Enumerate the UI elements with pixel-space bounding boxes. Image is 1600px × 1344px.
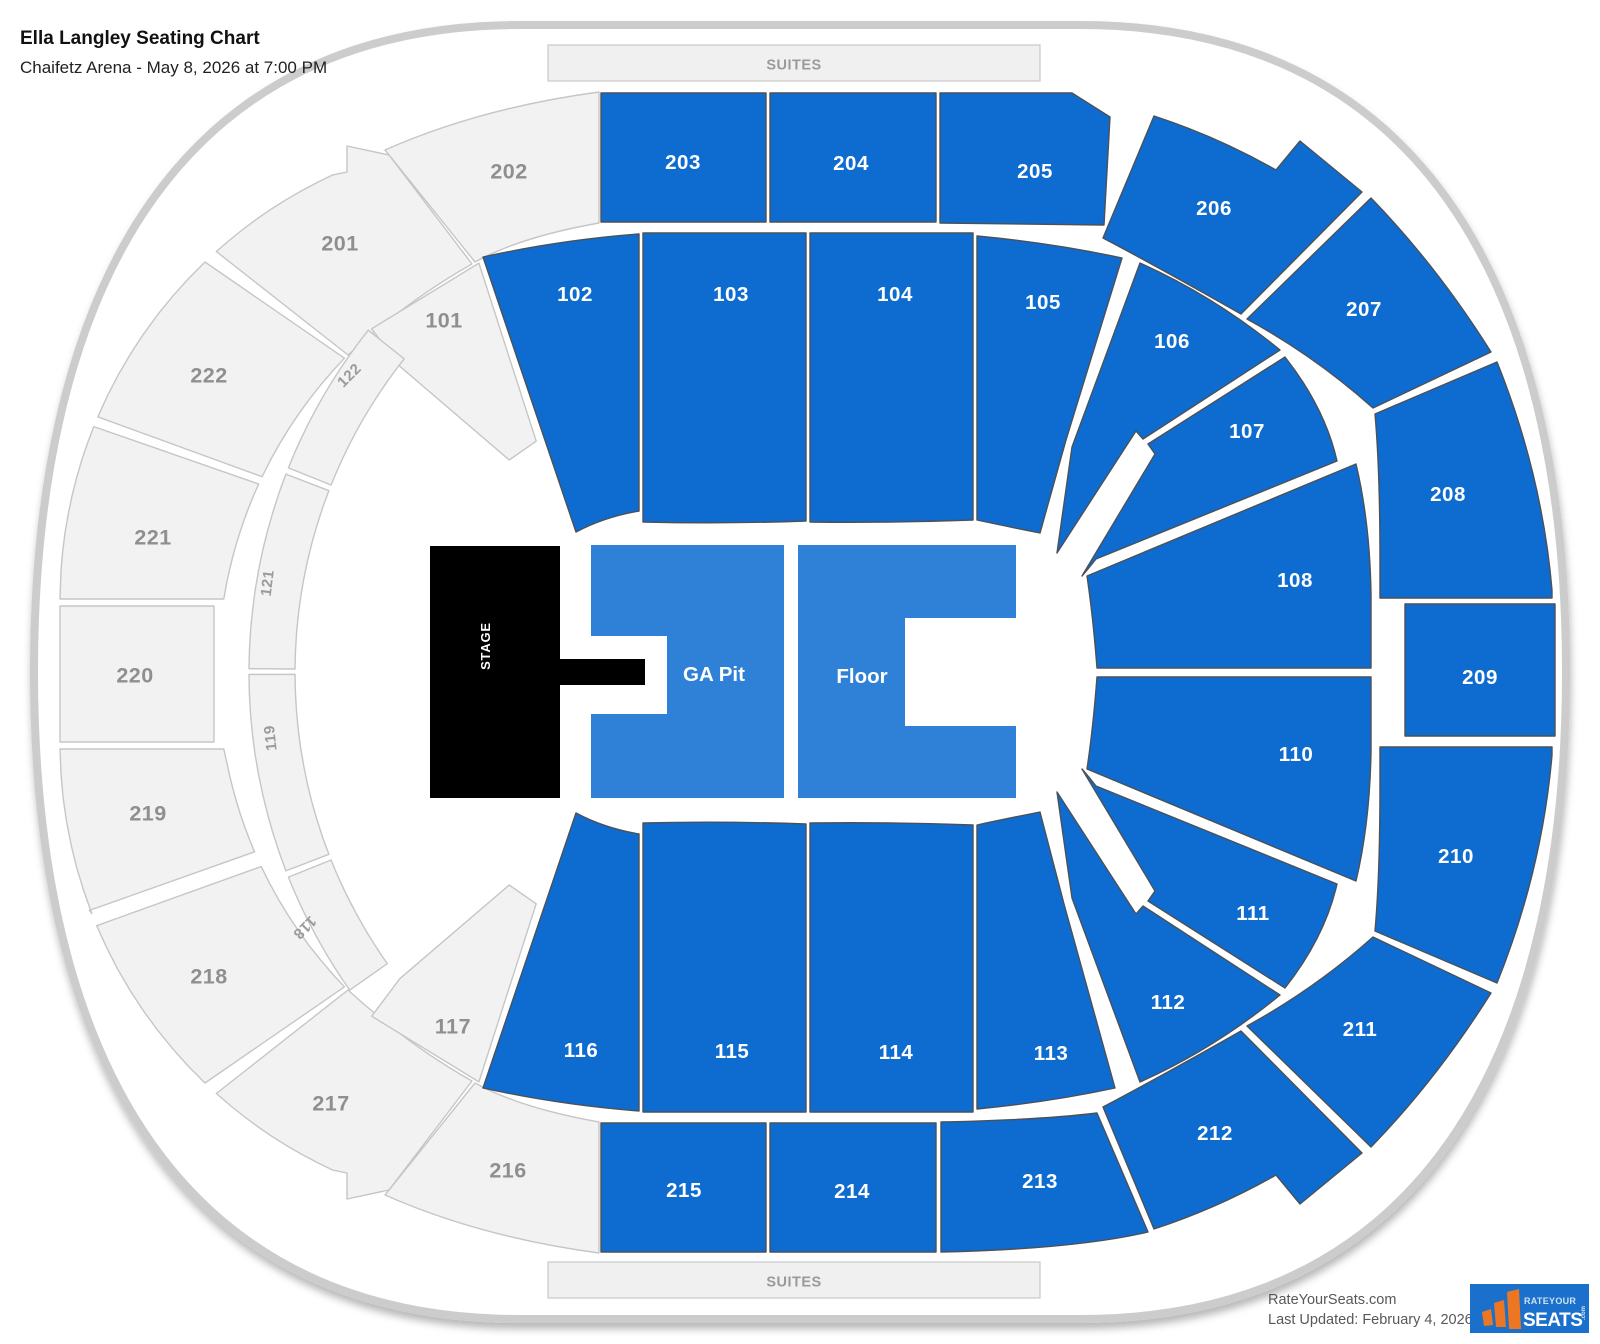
- svg-text:212: 212: [1197, 1122, 1233, 1145]
- svg-text:107: 107: [1229, 420, 1265, 443]
- svg-text:Chaifetz Arena - May 8, 2026 a: Chaifetz Arena - May 8, 2026 at 7:00 PM: [20, 58, 327, 77]
- svg-text:208: 208: [1430, 483, 1466, 506]
- svg-text:213: 213: [1022, 1170, 1058, 1193]
- svg-text:222: 222: [190, 364, 227, 388]
- svg-text:216: 216: [489, 1159, 526, 1183]
- svg-text:204: 204: [833, 152, 869, 175]
- svg-text:219: 219: [129, 802, 166, 826]
- svg-text:112: 112: [1151, 991, 1186, 1014]
- svg-text:Ella Langley Seating Chart: Ella Langley Seating Chart: [20, 28, 260, 49]
- svg-text:211: 211: [1343, 1018, 1378, 1041]
- svg-text:113: 113: [1034, 1042, 1069, 1065]
- svg-text:SEATS: SEATS: [1523, 1310, 1582, 1331]
- svg-text:.com: .com: [1581, 1306, 1587, 1320]
- svg-text:214: 214: [834, 1180, 870, 1203]
- svg-text:116: 116: [564, 1039, 599, 1062]
- svg-text:Last Updated: February 4, 2026: Last Updated: February 4, 2026: [1268, 1312, 1473, 1328]
- svg-text:RateYourSeats.com: RateYourSeats.com: [1268, 1292, 1396, 1308]
- svg-text:104: 104: [877, 283, 913, 306]
- svg-text:115: 115: [715, 1040, 750, 1063]
- svg-text:206: 206: [1196, 197, 1232, 220]
- svg-text:218: 218: [190, 965, 227, 989]
- svg-text:201: 201: [321, 232, 358, 256]
- svg-text:119: 119: [261, 724, 281, 751]
- svg-text:217: 217: [312, 1092, 349, 1116]
- svg-text:111: 111: [1236, 902, 1269, 925]
- svg-text:106: 106: [1154, 330, 1190, 353]
- svg-text:Floor: Floor: [836, 665, 887, 688]
- svg-text:RATEYOUR: RATEYOUR: [1524, 1296, 1576, 1306]
- svg-text:114: 114: [879, 1041, 914, 1064]
- svg-text:221: 221: [134, 526, 171, 550]
- svg-text:215: 215: [666, 1179, 702, 1202]
- svg-text:105: 105: [1025, 291, 1061, 314]
- svg-text:220: 220: [116, 664, 153, 688]
- svg-text:205: 205: [1017, 160, 1053, 183]
- svg-text:210: 210: [1438, 845, 1474, 868]
- svg-text:108: 108: [1277, 569, 1313, 592]
- svg-text:203: 203: [665, 151, 701, 174]
- svg-text:102: 102: [557, 283, 593, 306]
- svg-text:117: 117: [435, 1015, 471, 1039]
- svg-text:209: 209: [1462, 666, 1498, 689]
- svg-text:STAGE: STAGE: [478, 622, 493, 670]
- svg-text:101: 101: [425, 309, 462, 333]
- svg-text:207: 207: [1346, 298, 1382, 321]
- svg-text:103: 103: [713, 283, 749, 306]
- svg-text:SUITES: SUITES: [766, 1275, 821, 1291]
- svg-text:SUITES: SUITES: [766, 58, 821, 74]
- svg-text:202: 202: [490, 160, 527, 184]
- svg-text:GA Pit: GA Pit: [683, 663, 745, 686]
- svg-text:110: 110: [1279, 743, 1314, 766]
- svg-text:121: 121: [258, 569, 278, 597]
